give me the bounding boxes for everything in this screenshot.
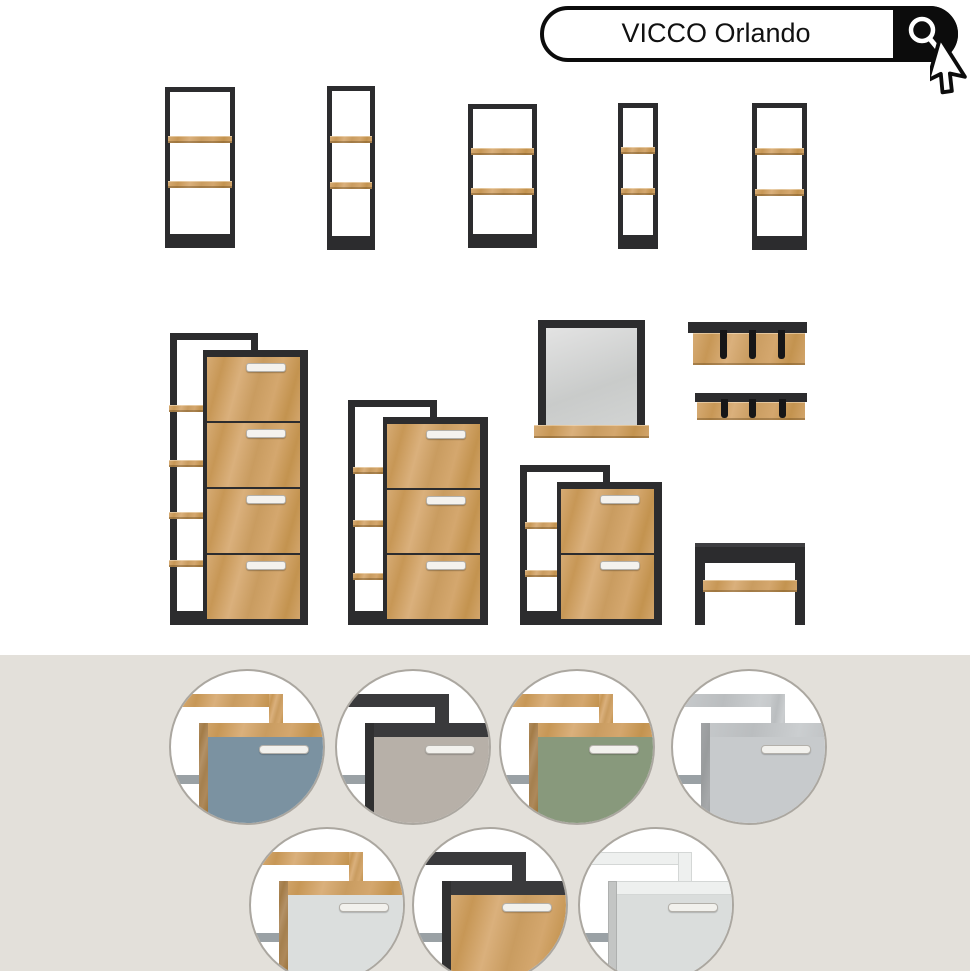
wood-shelf xyxy=(621,147,655,154)
variant-swatch-white-white[interactable] xyxy=(578,827,734,971)
cabinet-top-detail xyxy=(279,881,405,895)
variant-swatch-oak-green[interactable] xyxy=(499,669,655,825)
lower-shelf-detail xyxy=(414,933,442,942)
wood-shelf xyxy=(168,136,232,143)
cabinet-edge-detail xyxy=(365,723,374,825)
cabinet-edge-detail xyxy=(701,723,710,825)
drawer-handle xyxy=(246,363,286,372)
lower-shelf-detail xyxy=(501,775,529,784)
frame-post xyxy=(520,465,527,625)
cabinet-top-detail xyxy=(701,723,827,737)
frame-topbar-detail xyxy=(511,694,613,707)
rack-top xyxy=(688,322,807,333)
drawer-handle xyxy=(426,430,466,439)
drawer-handle xyxy=(426,496,466,505)
variants-band xyxy=(0,655,970,971)
drawer-front xyxy=(387,490,480,554)
frame-topbar-detail xyxy=(590,852,692,865)
frame-topbar xyxy=(348,400,437,407)
variant-swatch-anthracite-oak[interactable] xyxy=(412,827,568,971)
side-shelf xyxy=(169,560,205,567)
side-shelf xyxy=(353,520,386,527)
wall-shelf-2 xyxy=(327,86,375,250)
side-shelf xyxy=(525,570,559,577)
cabinet-body xyxy=(203,350,308,625)
magnifier-icon xyxy=(905,14,947,56)
drawer-handle xyxy=(246,429,286,438)
drawer-handle-detail xyxy=(259,745,309,754)
frame-topbar-detail xyxy=(181,694,283,707)
variant-swatch-oak-white[interactable] xyxy=(249,827,405,971)
page: VICCO Orlando xyxy=(0,0,970,971)
lower-shelf-detail xyxy=(251,933,279,942)
frame-post xyxy=(348,400,355,625)
frame-topbar-detail xyxy=(261,852,363,865)
cabinet-edge-detail xyxy=(199,723,208,825)
side-shelf xyxy=(169,460,205,467)
drawer-handle-detail xyxy=(425,745,475,754)
wood-shelf xyxy=(471,148,534,155)
drawer-front xyxy=(207,423,300,487)
cabinet-edge-detail xyxy=(279,881,288,971)
drawer-front xyxy=(561,489,654,553)
lower-shelf-detail xyxy=(673,775,701,784)
wall-shelf-5 xyxy=(752,103,807,250)
cabinet-edge-detail xyxy=(608,881,617,971)
cabinet-top-detail xyxy=(365,723,491,737)
cabinet-body xyxy=(383,417,488,625)
wall-shelf-1 xyxy=(165,87,235,248)
cabinet-top-detail xyxy=(199,723,325,737)
cabinet-edge-detail xyxy=(529,723,538,825)
search-query-text: VICCO Orlando xyxy=(540,6,892,62)
wall-shelf-3 xyxy=(468,104,537,248)
wall-shelf-4 xyxy=(618,103,658,249)
hook xyxy=(749,330,756,359)
lower-shelf-detail xyxy=(580,933,608,942)
cabinet-edge-detail xyxy=(442,881,451,971)
drawer-handle xyxy=(246,495,286,504)
frame-base xyxy=(520,611,562,625)
cabinet-body xyxy=(557,482,662,625)
drawer-front xyxy=(387,424,480,488)
drawer-front xyxy=(387,555,480,619)
frame-post xyxy=(170,333,177,625)
drawer-handle xyxy=(246,561,286,570)
bench-leg xyxy=(795,563,805,625)
drawer-handle-detail xyxy=(339,903,389,912)
wood-shelf xyxy=(330,182,372,189)
variant-swatch-anthracite-taupe[interactable] xyxy=(335,669,491,825)
drawer-handle xyxy=(600,495,640,504)
side-shelf xyxy=(353,573,386,580)
wood-shelf xyxy=(621,188,655,195)
wood-shelf xyxy=(755,148,804,155)
drawer-handle xyxy=(426,561,466,570)
variant-swatch-concrete-grey[interactable] xyxy=(671,669,827,825)
bench-top xyxy=(695,543,805,563)
side-shelf xyxy=(525,522,559,529)
drawer-handle-detail xyxy=(668,903,718,912)
lower-shelf-detail xyxy=(337,775,365,784)
drawer-handle xyxy=(600,561,640,570)
frame-topbar xyxy=(520,465,610,472)
wood-shelf xyxy=(755,189,804,196)
drawer-front xyxy=(207,489,300,553)
cabinet-top-detail xyxy=(442,881,568,895)
lower-shelf-detail xyxy=(171,775,199,784)
drawer-front xyxy=(207,555,300,619)
drawer-handle-detail xyxy=(589,745,639,754)
frame-topbar-detail xyxy=(424,852,526,865)
hook xyxy=(779,399,786,418)
drawer-front xyxy=(561,555,654,619)
hook xyxy=(721,399,728,418)
wood-shelf xyxy=(168,181,232,188)
drawer-front xyxy=(207,357,300,421)
side-shelf xyxy=(169,512,205,519)
frame-topbar-detail xyxy=(347,694,449,707)
cabinet-top-detail xyxy=(608,881,734,895)
bench-shelf xyxy=(703,580,797,592)
frame-base xyxy=(348,611,388,625)
wood-shelf xyxy=(471,188,534,195)
side-shelf xyxy=(353,467,386,474)
hook xyxy=(720,330,727,359)
bench-leg xyxy=(695,563,705,625)
mirror-shelf xyxy=(534,425,649,438)
variant-swatch-oak-blue[interactable] xyxy=(169,669,325,825)
frame-topbar xyxy=(170,333,258,340)
hook xyxy=(749,399,756,418)
cabinet-top-detail xyxy=(529,723,655,737)
search-button[interactable] xyxy=(893,6,958,62)
drawer-handle-detail xyxy=(761,745,811,754)
hook xyxy=(778,330,785,359)
side-shelf xyxy=(169,405,205,412)
frame-topbar-detail xyxy=(683,694,785,707)
wood-shelf xyxy=(330,136,372,143)
wall-mirror xyxy=(538,320,645,426)
drawer-handle-detail xyxy=(502,903,552,912)
